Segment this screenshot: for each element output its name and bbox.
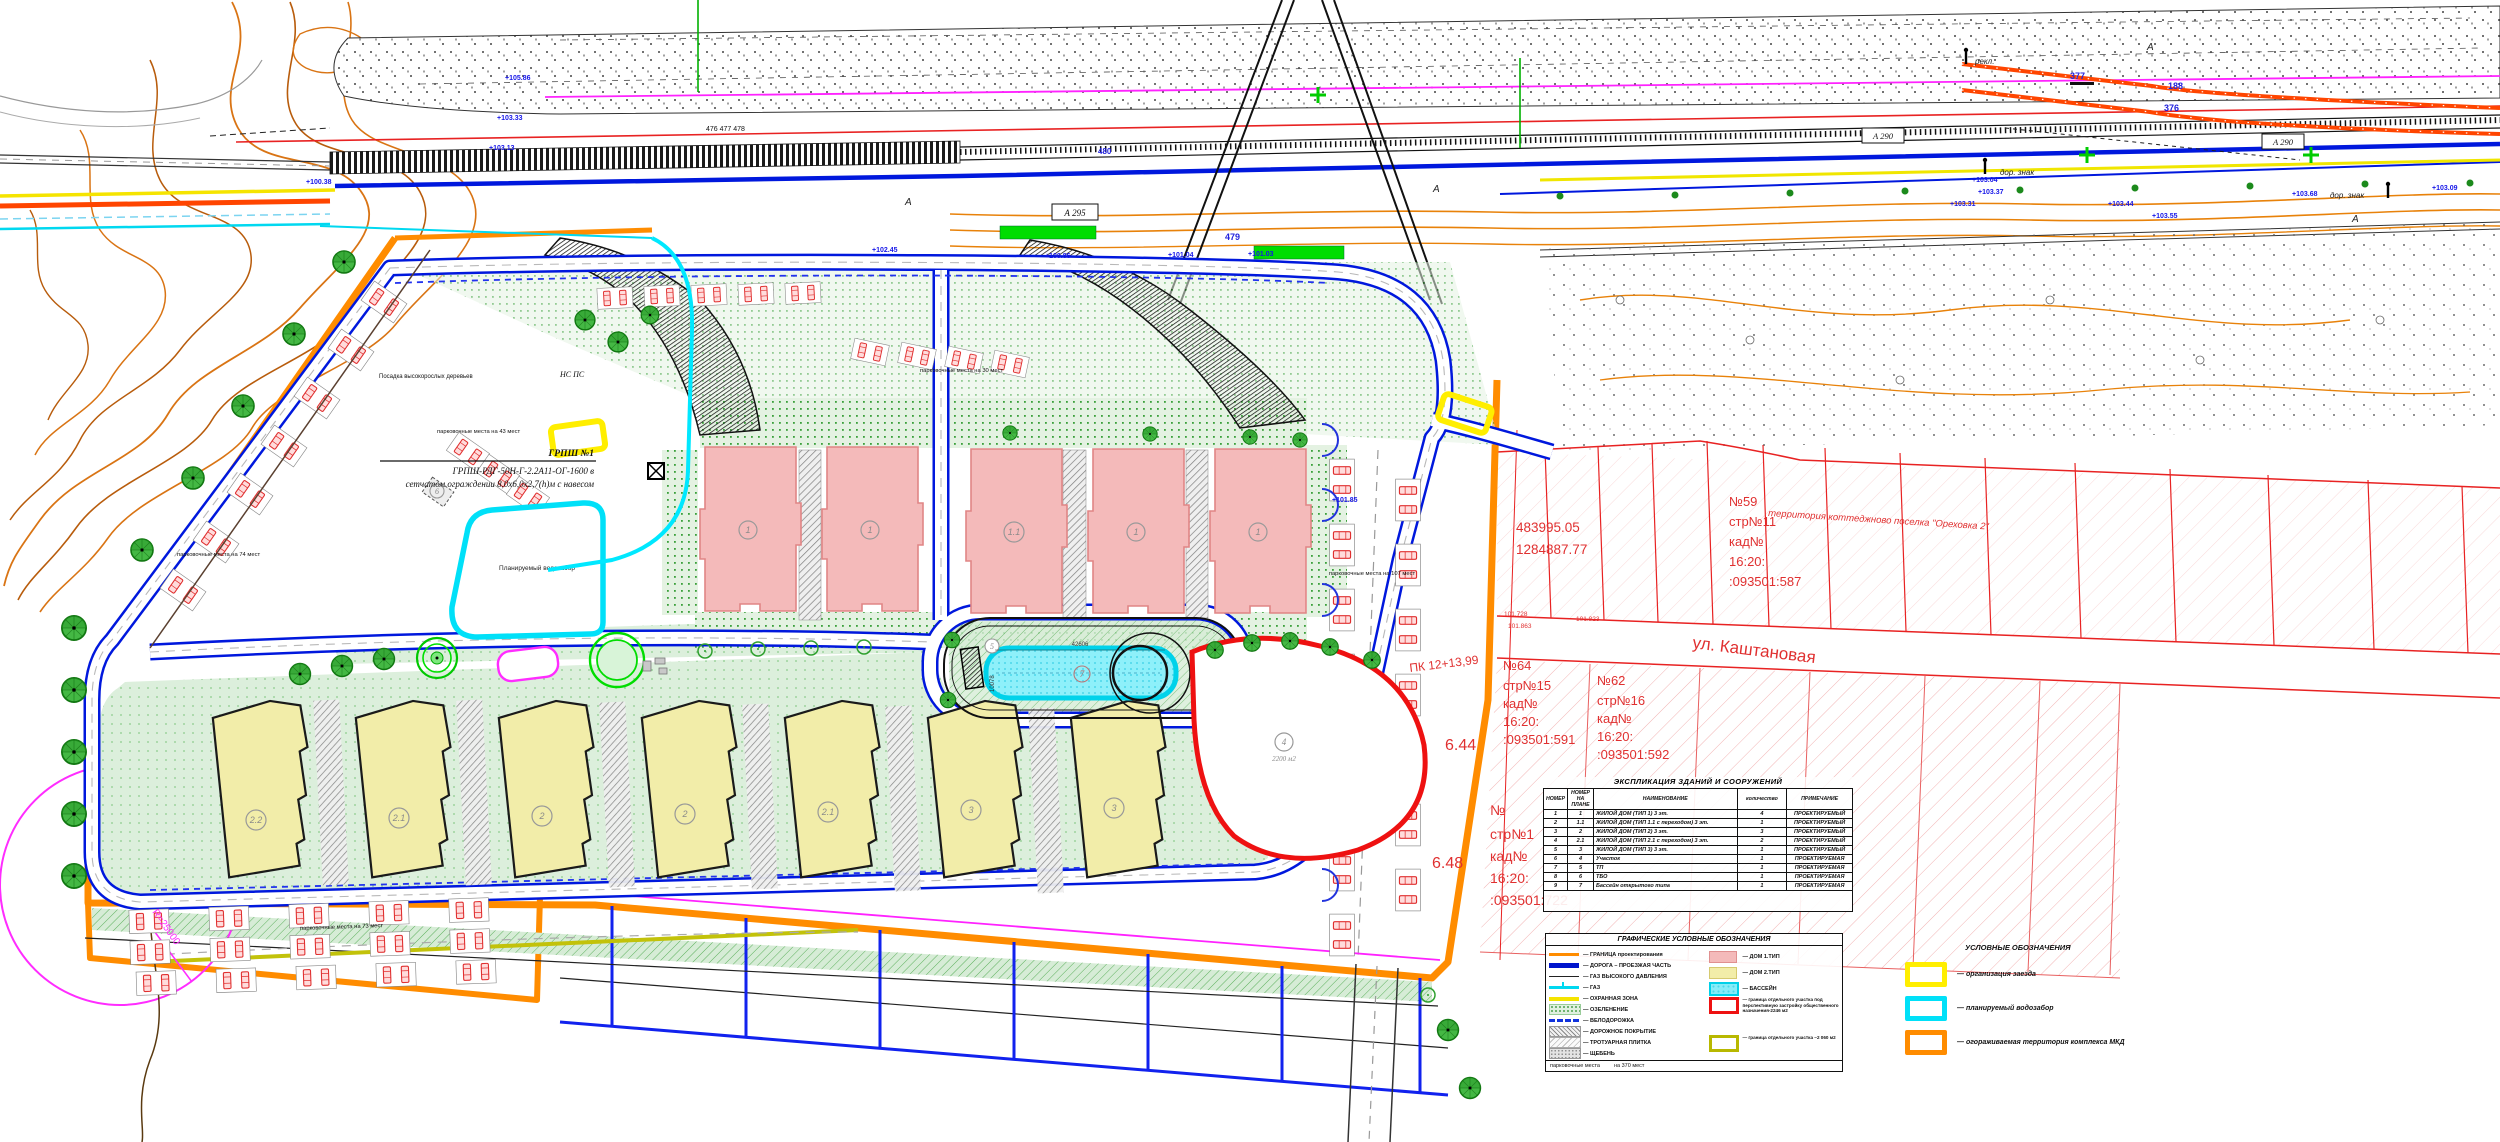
tp-number: 5 [990,642,994,651]
spot-height: 101.728 [1504,611,1528,618]
svg-text:ГРПШ №1: ГРПШ №1 [548,449,594,459]
elevation-mark: +100.86 [1045,253,1071,260]
post-number: 376 [2164,103,2179,113]
table-row: 32ЖИЛОЙ ДОМ (ТИП 2) 3 эт.3ПРОЕКТИРУЕМЫЙ [1544,828,1853,837]
legend-item: граница отдельного участка ~2 060 м2 [1709,1035,1840,1055]
svg-text:А 290: А 290 [2272,137,2294,147]
hp-gas-line-swatch [1549,976,1579,978]
svg-text:А 290: А 290 [1872,131,1894,141]
post-number: 479 [1225,232,1240,242]
vodozabor-area: Планируемый водозабор [452,503,603,637]
olive-site-swatch [1709,1035,1739,1052]
elevation-mark: +103.31 [1950,201,1976,208]
elevation-mark: +100.38 [306,179,332,186]
table-row: 86ТБО1ПРОЕКТИРУЕМАЯ [1544,873,1853,882]
site-number: 4 [1282,737,1287,747]
billboard-label: рекл. [1974,57,1994,66]
simple-legend-title: УСЛОВНЫЕ ОБОЗНАЧЕНИЯ [1965,943,2275,952]
planting-note: Посадка высокорослых деревьев [379,374,473,380]
road-letter: А [2146,42,2154,53]
legend-item: ГРАНИЦА проектирования [1549,949,1709,960]
pk-station-label: ПК 12+13,99 [1409,653,1480,675]
apartment-buildings: 1 1 1.1 1 1 [700,447,1311,620]
elevation-mark: +105.86 [505,75,531,82]
legend-item: ТРОТУАРНАЯ ПЛИТКА [1549,1037,1709,1048]
boundary-line-swatch [1549,953,1579,956]
svg-text:№64: №64 [1503,658,1531,673]
legend-item: ДОМ 1.ТИП [1709,949,1840,965]
road-line-swatch [1549,963,1579,968]
grid-cross-icon [2079,147,2095,163]
building-number: 1 [1133,527,1138,537]
greenery-swatch [1549,1004,1581,1015]
legend-item: ОЗЕЛЕНЕНИЕ [1549,1004,1709,1015]
elevation-mark: +103.37 [1978,189,2004,196]
svg-text:№: № [1490,802,1505,818]
road-sign-label: дор. знак [2000,168,2035,177]
svg-text:сетчатом ограждении 8,0х6,0х2,: сетчатом ограждении 8,0х6,0х2,7(h)м с на… [406,479,595,489]
legend-item: ГАЗ ВЫСОКОГО ДАВЛЕНИЯ [1549,971,1709,982]
elevation-mark: +101.85 [1332,497,1358,504]
house-number: 2.1 [821,807,835,817]
parking-count-label: парковочные места на 107 мест [1329,571,1416,577]
table-row: 42.1ЖИЛОЙ ДОМ (ТИП 2.1 с переходом) 3 эт… [1544,837,1853,846]
elevation-mark: +103.33 [497,115,523,122]
parking-count-label: парковочные места на 43 мест [437,429,520,435]
parking-count-label: парковочные места на 30 мест [920,368,1003,374]
pool-swatch [1709,982,1739,996]
svg-text:16:20:: 16:20: [1597,729,1633,744]
table-row: 11ЖИЛОЙ ДОМ (ТИП 1) 3 эт.4ПРОЕКТИРУЕМЫЙ [1544,810,1853,819]
house-number: 3 [1111,803,1116,813]
pool-length-dim: 42606 [1072,642,1089,648]
legend-item: БАССЕЙН [1709,981,1840,997]
legend-item: ВЕЛОДОРОЖКА [1549,1015,1709,1026]
pool-number: 7 [1080,669,1085,679]
house-number: 2 [538,811,544,821]
reserved-site: 4 2200 м2 [1192,638,1425,858]
road-letter: А [904,197,912,208]
house-type2-swatch [1709,967,1737,979]
svg-text:стр№16: стр№16 [1597,693,1645,708]
pool-width-dim: 10078 [990,675,996,692]
building-number: 1 [1255,527,1260,537]
elevation-mark: +103.55 [2152,213,2178,220]
post-number: 476 477 478 [706,126,745,133]
elevation-mark: +103.68 [2292,191,2318,198]
road-letter: А [2351,214,2359,225]
elevation-mark: +103.44 [2108,201,2134,208]
elevation-mark: +103.04 [1972,177,1998,184]
bike-path-swatch [1549,1019,1579,1022]
site-area: 2200 м2 [1272,755,1296,763]
pavement-swatch [1549,1026,1581,1037]
house-number: 2.1 [392,813,406,823]
survey-highlight [1000,226,1096,239]
svg-text:А 295: А 295 [1063,208,1086,218]
coordinate-n: 483995.05 [1516,520,1580,535]
legend-item: ОХРАННАЯ ЗОНА [1549,993,1709,1004]
table-row: 21.1ЖИЛОЙ ДОМ (ТИП 1.1 с переходом) 3 эт… [1544,819,1853,828]
table-row: 97Бассейн открытого типа1ПРОЕКТИРУЕМАЯ [1544,882,1853,891]
elevation-mark: +103.09 [2432,185,2458,192]
svg-text::093501:591: :093501:591 [1503,732,1575,747]
ns-ps-note: НС ПС [559,370,585,379]
gas-line-swatch [1549,986,1579,989]
svg-text:ГРПШ-РДГ-50Н-Г-2.2А11-ОГ-1600: ГРПШ-РДГ-50Н-Г-2.2А11-ОГ-1600 в [452,466,595,476]
legend-footer: парковочные местана 370 мест [1546,1060,1842,1071]
table-row: 53ЖИЛОЙ ДОМ (ТИП 3) 3 эт.1ПРОЕКТИРУЕМЫЙ [1544,846,1853,855]
svg-text:кад№: кад№ [1503,696,1538,711]
building-number: 1 [745,525,750,535]
site-plan-sheet: 1 1 1.1 1 1 2.2 2.1 2 2 2.1 3 3 План [0,0,2500,1142]
elevation-red: 6.48 [1432,855,1463,872]
vodozabor-swatch [1905,996,1947,1021]
legend-item: ДОМ 2.ТИП [1709,965,1840,981]
svg-text::093501:587: :093501:587 [1729,574,1801,589]
railway-band [330,141,960,174]
svg-text:кад№: кад№ [1729,534,1764,549]
enclosed-territory-swatch [1905,1030,1947,1055]
legend-item: ДОРОГА – ПРОЕЗЖАЯ ЧАСТЬ [1549,960,1709,971]
red-site-swatch [1709,997,1739,1014]
elevation-mark: +101.04 [1168,252,1194,259]
table-row: 64Участок1ПРОЕКТИРУЕМАЯ [1544,855,1853,864]
graphic-legend: ГРАФИЧЕСКИЕ УСЛОВНЫЕ ОБОЗНАЧЕНИЯ ГРАНИЦА… [1545,933,1843,1072]
building-number: 1.1 [1008,527,1021,537]
elevation-mark: +101.03 [1248,251,1274,258]
spot-height: 101.823 [1576,616,1600,623]
elevation-mark: +102.45 [872,247,898,254]
parking-count-label: парковочные места на 74 мест [177,552,260,558]
legend-item: ГАЗ [1549,982,1709,993]
post-number: 188 [2168,81,2183,91]
tile-swatch [1549,1037,1581,1048]
table-title: ЭКСПЛИКАЦИЯ ЗДАНИЙ И СООРУЖЕНИЙ [1543,777,1853,788]
svg-text:№59: №59 [1729,494,1757,509]
entrance-swatch [1905,962,1947,987]
elevation-mark: +103.13 [489,145,515,152]
legend-item: организация заезда [1905,962,2275,987]
spot-height: 101.863 [1508,623,1532,630]
table-empty-row [1544,891,1853,912]
post-number: 480 [1098,147,1112,156]
svg-text:16:20:: 16:20: [1490,870,1529,886]
road-sign-label: дор. знак [2330,191,2365,200]
svg-text:16:20:: 16:20: [1729,554,1765,569]
svg-text:кад№: кад№ [1597,711,1632,726]
table-header-row: НОМЕРНОМЕР НА ПЛАНЕ НАИМЕНОВАНИЕколичест… [1544,789,1853,810]
svg-text:кад№: кад№ [1490,848,1527,864]
svg-text:стр№1: стр№1 [1490,826,1534,842]
legend-item: планируемый водозабор [1905,996,2275,1021]
legend-item: ДОРОЖНОЕ ПОКРЫТИЕ [1549,1026,1709,1037]
legend-item: граница отдельного участка под перспекти… [1709,997,1840,1035]
svg-text:№62: №62 [1597,673,1625,688]
elevation-red: 6.44 [1445,737,1476,754]
svg-text:16:20:: 16:20: [1503,714,1539,729]
legend-item: ЩЕБЕНЬ [1549,1048,1709,1059]
legend-item: огораживаемая территория комплекса МКД [1905,1030,2275,1055]
house-type1-swatch [1709,951,1737,963]
house-number: 2.2 [249,815,263,825]
building-number: 1 [867,525,872,535]
gravel-swatch [1549,1048,1581,1059]
road-letter: А [1432,184,1440,195]
simple-legend: УСЛОВНЫЕ ОБОЗНАЧЕНИЯ организация заезда … [1905,943,2275,1064]
post-number: 377 [2070,71,2085,81]
explication-table: ЭКСПЛИКАЦИЯ ЗДАНИЙ И СООРУЖЕНИЙ НОМЕРНОМ… [1543,777,1853,912]
street-label: ул. Каштановая [1692,633,1817,667]
table-row: 75ТП1ПРОЕКТИРУЕМАЯ [1544,864,1853,873]
svg-text:стр№15: стр№15 [1503,678,1551,693]
graphic-legend-title: ГРАФИЧЕСКИЕ УСЛОВНЫЕ ОБОЗНАЧЕНИЯ [1546,934,1842,946]
house-number: 2 [681,809,687,819]
coordinate-e: 1284887.77 [1516,542,1587,557]
svg-text::093501:592: :093501:592 [1597,747,1669,762]
protection-zone-swatch [1549,997,1579,1001]
house-number: 3 [968,805,973,815]
